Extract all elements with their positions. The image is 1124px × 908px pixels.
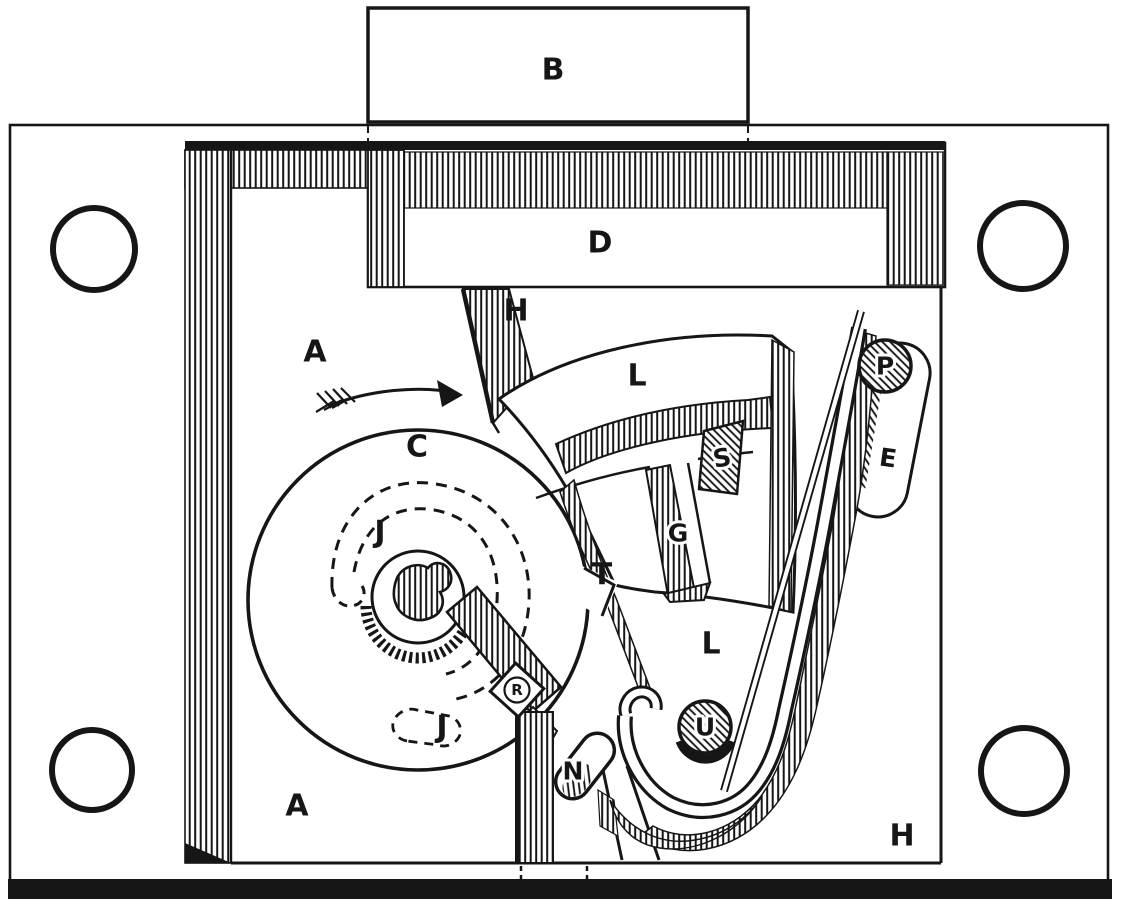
label-plate-a-upper: A xyxy=(303,335,327,370)
label-key-path-j-upper: J xyxy=(372,515,385,550)
lock-diagram: B D C J J xyxy=(0,0,1124,908)
screw-hole-top-right xyxy=(980,203,1066,289)
label-wheel-c: C xyxy=(406,430,428,465)
bolt-tail-top-hatch xyxy=(404,152,887,208)
case-right-wall-block xyxy=(887,152,943,285)
label-stud-u: U xyxy=(695,713,715,742)
label-notch-t: T xyxy=(592,558,613,593)
screw-hole-bottom-right xyxy=(981,728,1067,814)
label-stub-n: N xyxy=(563,757,584,786)
label-key-path-j-lower: J xyxy=(434,710,447,745)
label-tumbler-l-lower: L xyxy=(701,627,720,662)
case-left-wall xyxy=(185,150,231,863)
label-bolt-tail-d: D xyxy=(588,226,613,261)
screw-hole-top-left xyxy=(53,208,135,290)
lock-mechanism-figure: B D C J J xyxy=(0,0,1124,908)
label-tumbler-l-upper: L xyxy=(627,359,646,394)
label-case-h-lower: H xyxy=(889,819,914,854)
label-detent-h: H xyxy=(503,294,528,329)
screw-hole-bottom-left xyxy=(52,730,132,810)
label-roller-r: R xyxy=(511,681,523,699)
bolt-guide-strip xyxy=(368,150,404,287)
label-gate-g: G xyxy=(668,519,689,548)
case-top-edge xyxy=(185,141,945,150)
label-plate-a-lower: A xyxy=(285,789,309,824)
label-bolt-b: B xyxy=(542,53,565,88)
plate-bottom-edge xyxy=(8,879,1112,899)
label-pin-p: P xyxy=(876,352,894,381)
arm-post xyxy=(516,712,553,863)
